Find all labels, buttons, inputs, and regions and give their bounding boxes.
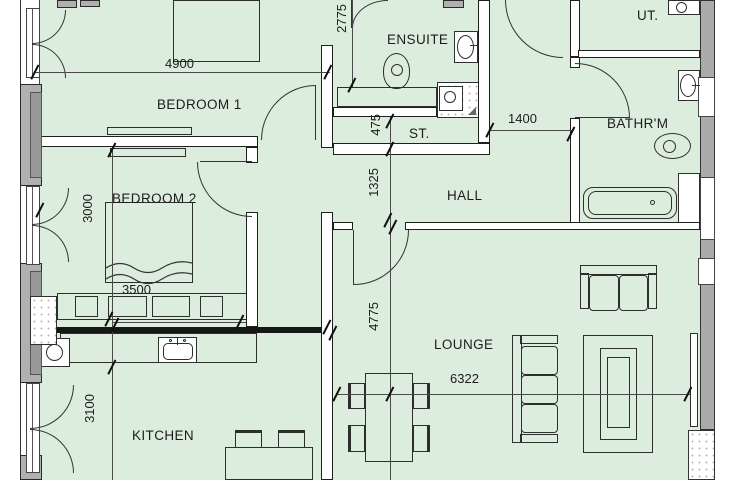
- door-leaf-lounge: [353, 230, 354, 285]
- right-wall-white-section: [700, 177, 715, 240]
- wall-bedroom2-kitchen: [42, 327, 321, 333]
- kitchen-tap-dot-1: [169, 339, 172, 342]
- wall-utility-bottom: [578, 50, 700, 58]
- wall-ensuite-left: [321, 45, 333, 148]
- shower-corner-mark: [468, 107, 476, 115]
- kitchen-hob-ring: [46, 344, 63, 361]
- wall-bedroom1-bedroom2: [40, 136, 258, 147]
- kitchen-corner-unit: [30, 296, 57, 345]
- kitchen-chair-2: [278, 430, 305, 448]
- ensuite-tap: [470, 45, 479, 46]
- wall-bedroom2-right: [246, 212, 258, 327]
- bathtub-drain: [650, 200, 655, 205]
- bathroom-tap: [692, 85, 700, 86]
- dim-6322: 6322: [450, 371, 479, 386]
- dim-475: 475: [368, 114, 383, 136]
- wardrobe-bedroom1: [107, 127, 192, 135]
- kitchen-sink-basin: [163, 343, 193, 360]
- dim-line-4900: [35, 72, 330, 73]
- utility-sink-basin: [676, 2, 687, 13]
- sofa-2seat-back: [580, 265, 657, 275]
- sofa-2seat-arm-left: [580, 273, 589, 309]
- dim-1325: 1325: [366, 168, 381, 197]
- wardrobe-section-2: [108, 296, 147, 317]
- dim-line-vertical-chain: [390, 117, 391, 480]
- wardrobe-bedroom2-top: [110, 148, 186, 157]
- bottom-right-block: [688, 430, 715, 480]
- wall-ensuite-right: [478, 0, 490, 143]
- sofa-3seat-cushion-2: [521, 375, 558, 404]
- label-bathroom: BATHR'M: [607, 116, 668, 131]
- wall-hall-lounge: [405, 222, 700, 230]
- wall-ensuite-bottom: [333, 107, 437, 117]
- shower-drain: [444, 91, 456, 103]
- label-lounge: LOUNGE: [434, 337, 493, 352]
- tv-unit: [690, 333, 698, 427]
- coffee-table-inner: [607, 357, 630, 428]
- label-hall: HALL: [447, 188, 482, 203]
- dim-3100: 3100: [82, 394, 97, 423]
- wall-kitchen-lounge: [321, 212, 333, 480]
- kitchen-tap: [177, 338, 178, 345]
- bathroom-toilet-flush: [663, 140, 676, 153]
- kitchen-tap-dot-2: [183, 339, 186, 342]
- dining-chair-4: [413, 425, 430, 452]
- dining-table: [365, 373, 413, 462]
- dim-3500: 3500: [122, 282, 151, 297]
- masonry-stub-top-3: [443, 0, 464, 8]
- sofa-3seat-arm-top: [520, 335, 558, 344]
- sofa-2seat-cushion-1: [589, 275, 619, 311]
- wardrobe-section-3: [152, 296, 190, 317]
- wall-hall-bottom-stub: [333, 222, 353, 230]
- sofa-2seat-cushion-2: [619, 275, 648, 311]
- masonry-pier-1-inner: [30, 92, 42, 178]
- window-right-2: [698, 258, 715, 285]
- sofa-3seat-cushion-1: [521, 346, 558, 375]
- dim-line-3500: [112, 322, 246, 323]
- label-bedroom1: BEDROOM 1: [157, 97, 242, 112]
- sofa-2seat-arm-right: [648, 273, 657, 309]
- bathtub-inner: [588, 191, 672, 215]
- sofa-3seat-cushion-3: [521, 404, 558, 433]
- label-ensuite: ENSUITE: [387, 32, 448, 47]
- ensuite-vanity: [337, 87, 437, 107]
- masonry-stub-top-2: [80, 0, 100, 7]
- dining-chair-3: [413, 383, 430, 409]
- dim-4900: 4900: [165, 56, 194, 71]
- ensuite-toilet-flush: [391, 64, 403, 76]
- wall-utility-left: [570, 0, 580, 57]
- masonry-stub-top-1: [57, 0, 77, 8]
- label-utility: UT.: [637, 8, 658, 23]
- wardrobe-section-4: [200, 296, 223, 317]
- dim-3000: 3000: [80, 194, 95, 223]
- window-right-1: [698, 77, 715, 117]
- label-store: ST.: [409, 126, 430, 141]
- label-kitchen: KITCHEN: [132, 428, 194, 443]
- wardrobe-section-1: [75, 296, 98, 317]
- label-bedroom2: BEDROOM 2: [112, 191, 197, 206]
- dim-4775: 4775: [366, 302, 381, 331]
- kitchen-table: [225, 447, 313, 480]
- dining-chair-2: [348, 425, 365, 452]
- ensuite-sink-basin: [457, 35, 474, 59]
- bathroom-cupboard: [678, 173, 700, 223]
- dim-2775: 2775: [334, 4, 349, 33]
- dim-line-1400: [490, 130, 573, 131]
- bed-bedroom1: [173, 0, 260, 62]
- dining-chair-1: [348, 383, 365, 409]
- sofa-3seat-arm-bottom: [520, 434, 558, 443]
- dim-line-2775: [352, 0, 353, 87]
- kitchen-chair-1: [235, 430, 262, 448]
- door-leaf-bedroom2: [200, 161, 252, 162]
- door-leaf-bedroom1: [315, 85, 316, 140]
- floor-plan: BEDROOM 1 BEDROOM 2 ENSUITE ST. HALL BAT…: [0, 0, 730, 480]
- dim-1400: 1400: [508, 111, 537, 126]
- wall-store-bottom: [333, 143, 490, 155]
